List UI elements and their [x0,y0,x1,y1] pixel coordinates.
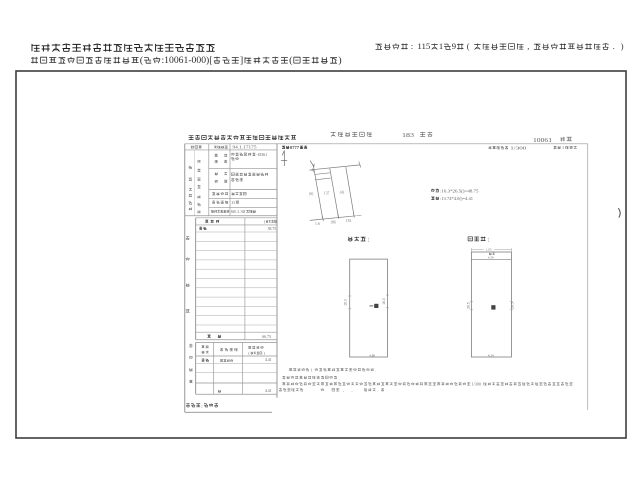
svg-text:66.73: 66.73 [262,335,271,339]
svg-text:-18361: -18361 [256,152,267,157]
svg-text::13.74*4.0()=4.41: :13.74*4.0()=4.41 [440,196,473,201]
svg-text:0777: 0777 [290,145,300,150]
svg-text:(: ( [289,55,292,65]
svg-text:1.05: 1.05 [486,247,492,251]
svg-text:(: ( [140,55,143,65]
svg-text:58.75: 58.75 [268,227,277,231]
svg-text:26.5: 26.5 [510,302,514,309]
svg-text:26.5: 26.5 [467,302,471,309]
svg-text:1: 1 [439,42,443,51]
svg-text::: : [411,42,413,51]
svg-text:.: . [377,388,378,393]
svg-text::16.3*26.5()=48.75: :16.3*26.5()=48.75 [440,188,479,193]
svg-text:4.39: 4.39 [488,256,494,260]
svg-text:1/300: 1/300 [472,382,482,387]
svg-text:4.80: 4.80 [369,353,375,357]
svg-text:68.1.30: 68.1.30 [231,209,245,214]
svg-text:115: 115 [417,42,430,51]
svg-text:4.41: 4.41 [265,358,272,362]
svg-text:4.34: 4.34 [488,353,494,357]
svg-text:4.41: 4.41 [265,389,272,393]
svg-text:137: 137 [324,191,330,195]
svg-text:.: . [339,375,340,380]
svg-text:): ) [338,55,341,65]
svg-text::10061-000)[: :10061-000)[ [162,55,213,65]
svg-text:94.1.17175: 94.1.17175 [233,145,257,150]
svg-text::: : [201,405,202,410]
svg-text:11: 11 [231,200,235,205]
svg-text:10061: 10061 [533,137,552,144]
svg-text:): ) [621,42,624,51]
svg-text:(: ( [467,42,470,51]
svg-text:183: 183 [402,132,414,139]
svg-text:1/300: 1/300 [510,145,526,150]
svg-text:.: . [613,42,615,51]
svg-text:186: 186 [330,220,336,224]
svg-text:.: . [375,368,376,373]
svg-text:]: ] [240,55,243,65]
svg-text:1: 1 [311,368,313,373]
svg-text::: : [368,237,370,244]
svg-text:1: 1 [562,145,564,150]
svg-text:181: 181 [346,219,352,223]
svg-text:9: 9 [452,42,456,51]
svg-text:16.3: 16.3 [382,298,386,305]
svg-text:16.3: 16.3 [343,299,347,306]
svg-text:1.6: 1.6 [315,222,320,226]
svg-text::: : [488,237,490,244]
svg-text:,: , [527,42,529,51]
